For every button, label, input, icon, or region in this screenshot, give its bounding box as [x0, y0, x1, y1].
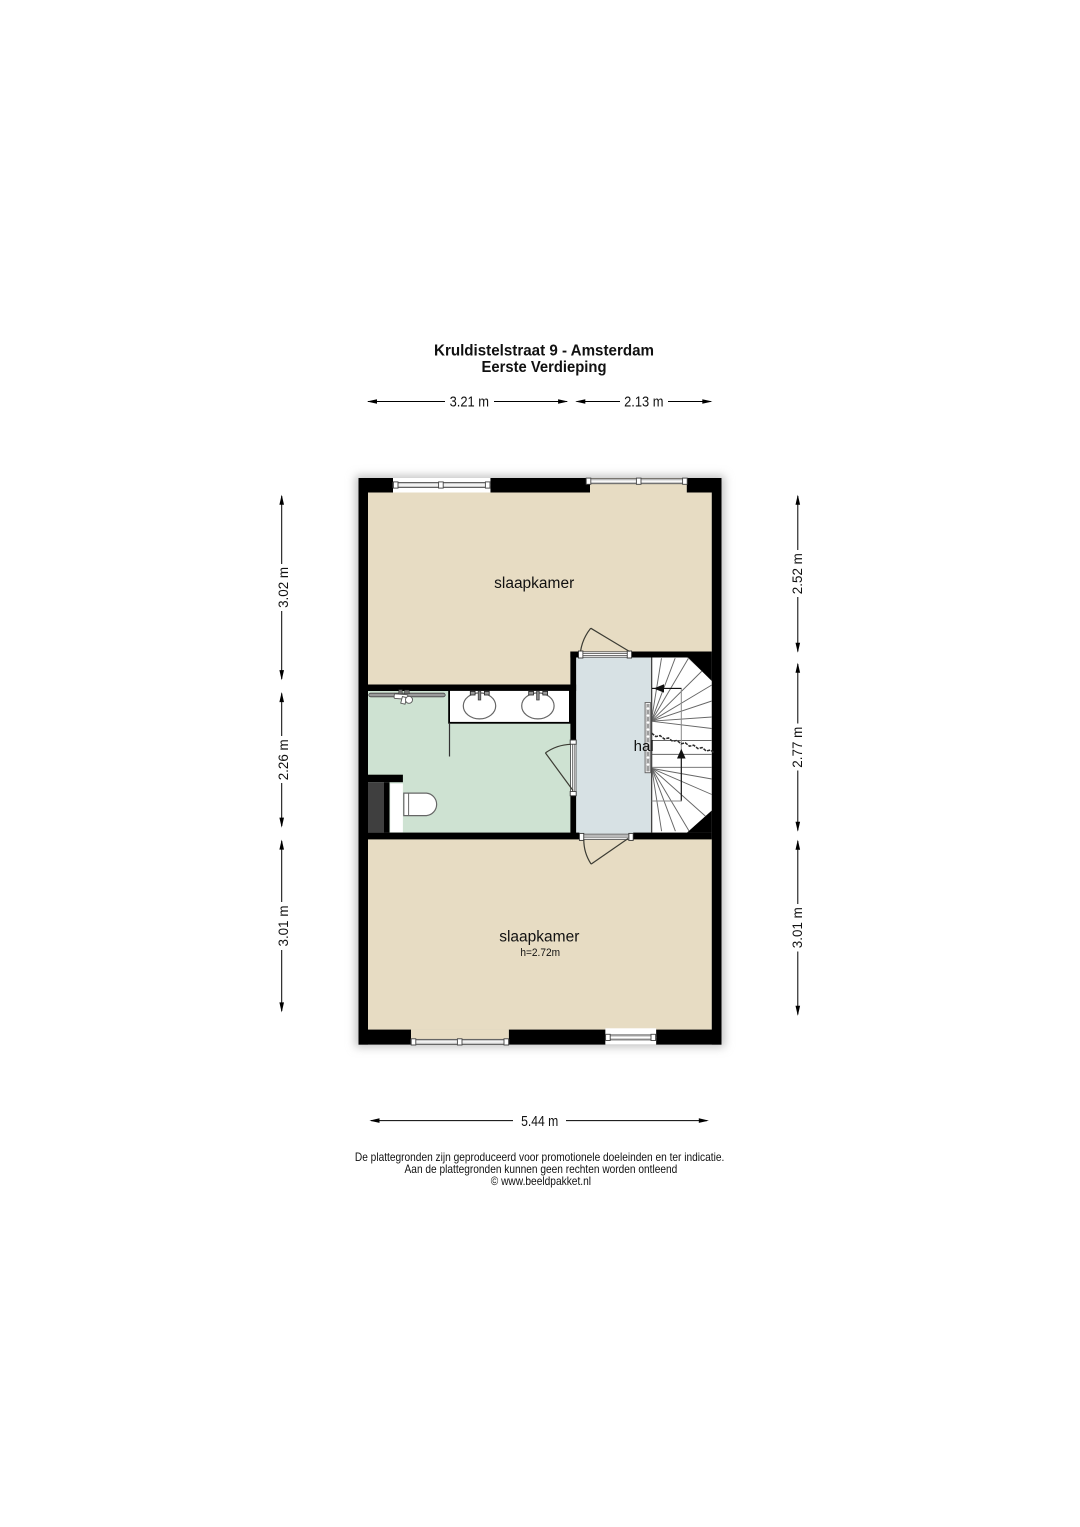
svg-text:© www.beeldpakket.nl: © www.beeldpakket.nl: [491, 1174, 591, 1188]
svg-text:hal: hal: [634, 738, 654, 755]
svg-text:3.01 m: 3.01 m: [275, 906, 291, 947]
svg-text:2.52 m: 2.52 m: [789, 553, 805, 594]
svg-text:Eerste Verdieping: Eerste Verdieping: [482, 359, 607, 376]
svg-text:h=2.72m: h=2.72m: [520, 947, 560, 959]
svg-text:3.01 m: 3.01 m: [789, 907, 805, 948]
svg-text:3.21 m: 3.21 m: [450, 394, 489, 411]
svg-text:2.26 m: 2.26 m: [275, 739, 291, 780]
svg-text:slaapkamer: slaapkamer: [499, 929, 579, 946]
svg-text:5.44 m: 5.44 m: [521, 1113, 558, 1130]
svg-text:2.13 m: 2.13 m: [624, 394, 663, 411]
svg-text:Kruldistelstraat 9 - Amsterdam: Kruldistelstraat 9 - Amsterdam: [434, 343, 654, 360]
svg-text:2.77 m: 2.77 m: [789, 727, 805, 768]
svg-text:slaapkamer: slaapkamer: [494, 575, 574, 592]
svg-text:3.02 m: 3.02 m: [275, 567, 291, 608]
